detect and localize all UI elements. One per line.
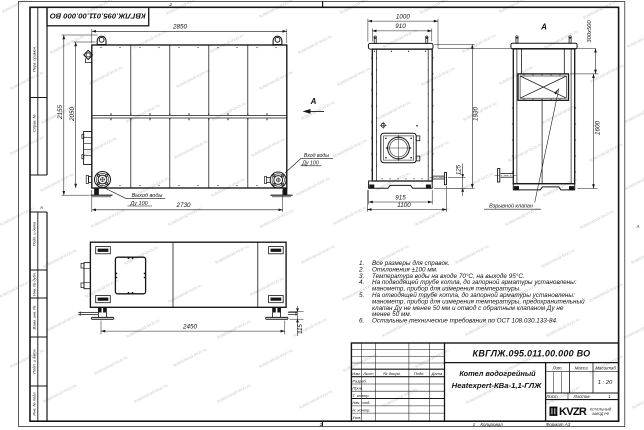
svg-text:5.: 5. — [359, 292, 364, 299]
svg-text:А: А — [39, 205, 43, 210]
svg-text:А: А — [540, 23, 547, 32]
svg-text:Перв. примен.: Перв. примен. — [32, 46, 37, 72]
svg-text:Пров.: Пров. — [352, 386, 363, 391]
svg-text:2450: 2450 — [182, 324, 198, 331]
svg-text:2: 2 — [168, 2, 172, 8]
svg-text:Инв. № подл.: Инв. № подл. — [32, 391, 37, 415]
svg-text:Разраб.: Разраб. — [352, 378, 366, 383]
svg-text:№ докум.: № докум. — [383, 371, 401, 376]
svg-text:Дата: Дата — [431, 371, 443, 376]
svg-text:Подп. и дата: Подп. и дата — [32, 348, 37, 373]
svg-text:1000: 1000 — [396, 13, 411, 20]
svg-text:А: А — [310, 97, 317, 106]
svg-text:1100: 1100 — [397, 202, 411, 209]
svg-text:915: 915 — [395, 194, 406, 201]
svg-text:910: 910 — [395, 23, 406, 30]
svg-text:Взам. инв. №: Взам. инв. № — [32, 305, 37, 330]
svg-text:1930: 1930 — [473, 107, 480, 122]
svg-text:Н. контр.: Н. контр. — [352, 407, 370, 412]
svg-text:2050: 2050 — [69, 107, 76, 123]
svg-text:KVZR: KVZR — [559, 406, 587, 418]
svg-text:Нач. отд.: Нач. отд. — [352, 400, 370, 405]
svg-text:Справ. №: Справ. № — [32, 113, 37, 131]
svg-text:Копировал: Копировал — [480, 422, 503, 427]
svg-text:Инв. № дубл.: Инв. № дубл. — [32, 272, 37, 296]
svg-text:Листов: Листов — [573, 394, 591, 399]
svg-text:Подп.: Подп. — [414, 371, 425, 376]
svg-text:ЗАВОД РФ: ЗАВОД РФ — [592, 412, 610, 416]
svg-text:Вход воды: Вход воды — [304, 153, 329, 159]
svg-text:115: 115 — [298, 324, 304, 334]
svg-text:КОТЕЛЬНЫЙ: КОТЕЛЬНЫЙ — [590, 407, 612, 411]
svg-text:Подп. и дата: Подп. и дата — [32, 221, 37, 246]
svg-text:Остальные технические требован: Остальные технические требования по ОСТ … — [372, 317, 558, 325]
svg-text:Масса: Масса — [575, 365, 589, 370]
svg-text:2: 2 — [319, 422, 323, 427]
svg-text:Heatexpert-КВа-1,1-ГЛЖ: Heatexpert-КВа-1,1-ГЛЖ — [452, 381, 543, 390]
svg-text:1 : 20: 1 : 20 — [598, 380, 613, 386]
svg-text:КВГЛЖ.095.011.00.000 ВО: КВГЛЖ.095.011.00.000 ВО — [50, 11, 146, 20]
svg-text:Утв.: Утв. — [352, 415, 361, 420]
svg-text:КВГЛЖ.095.011.00.000 ВО: КВГЛЖ.095.011.00.000 ВО — [473, 348, 591, 358]
svg-text:6.: 6. — [359, 318, 364, 325]
svg-text:Лист: Лист — [545, 394, 558, 399]
svg-text:Котел водогрейный: Котел водогрейный — [459, 369, 536, 378]
svg-text:2730: 2730 — [175, 202, 191, 209]
svg-text:Т. контр.: Т. контр. — [352, 393, 369, 398]
svg-text:Изм.: Изм. — [352, 371, 361, 376]
svg-text:4.: 4. — [359, 279, 364, 286]
svg-text:2850: 2850 — [172, 23, 188, 30]
svg-text:Взрывной клапан: Взрывной клапан — [489, 202, 533, 209]
svg-text:300х500: 300х500 — [587, 20, 593, 43]
svg-text:Формат А3: Формат А3 — [546, 422, 571, 427]
svg-text:Лист: Лист — [362, 371, 374, 376]
svg-text:Масштаб: Масштаб — [595, 365, 616, 370]
svg-text:125: 125 — [457, 164, 463, 175]
svg-text:1600: 1600 — [594, 121, 601, 136]
svg-text:2155: 2155 — [57, 105, 64, 121]
svg-text:А: А — [635, 224, 639, 229]
svg-text:Лит.: Лит. — [551, 365, 562, 370]
svg-text:Выход воды: Выход воды — [132, 193, 163, 199]
